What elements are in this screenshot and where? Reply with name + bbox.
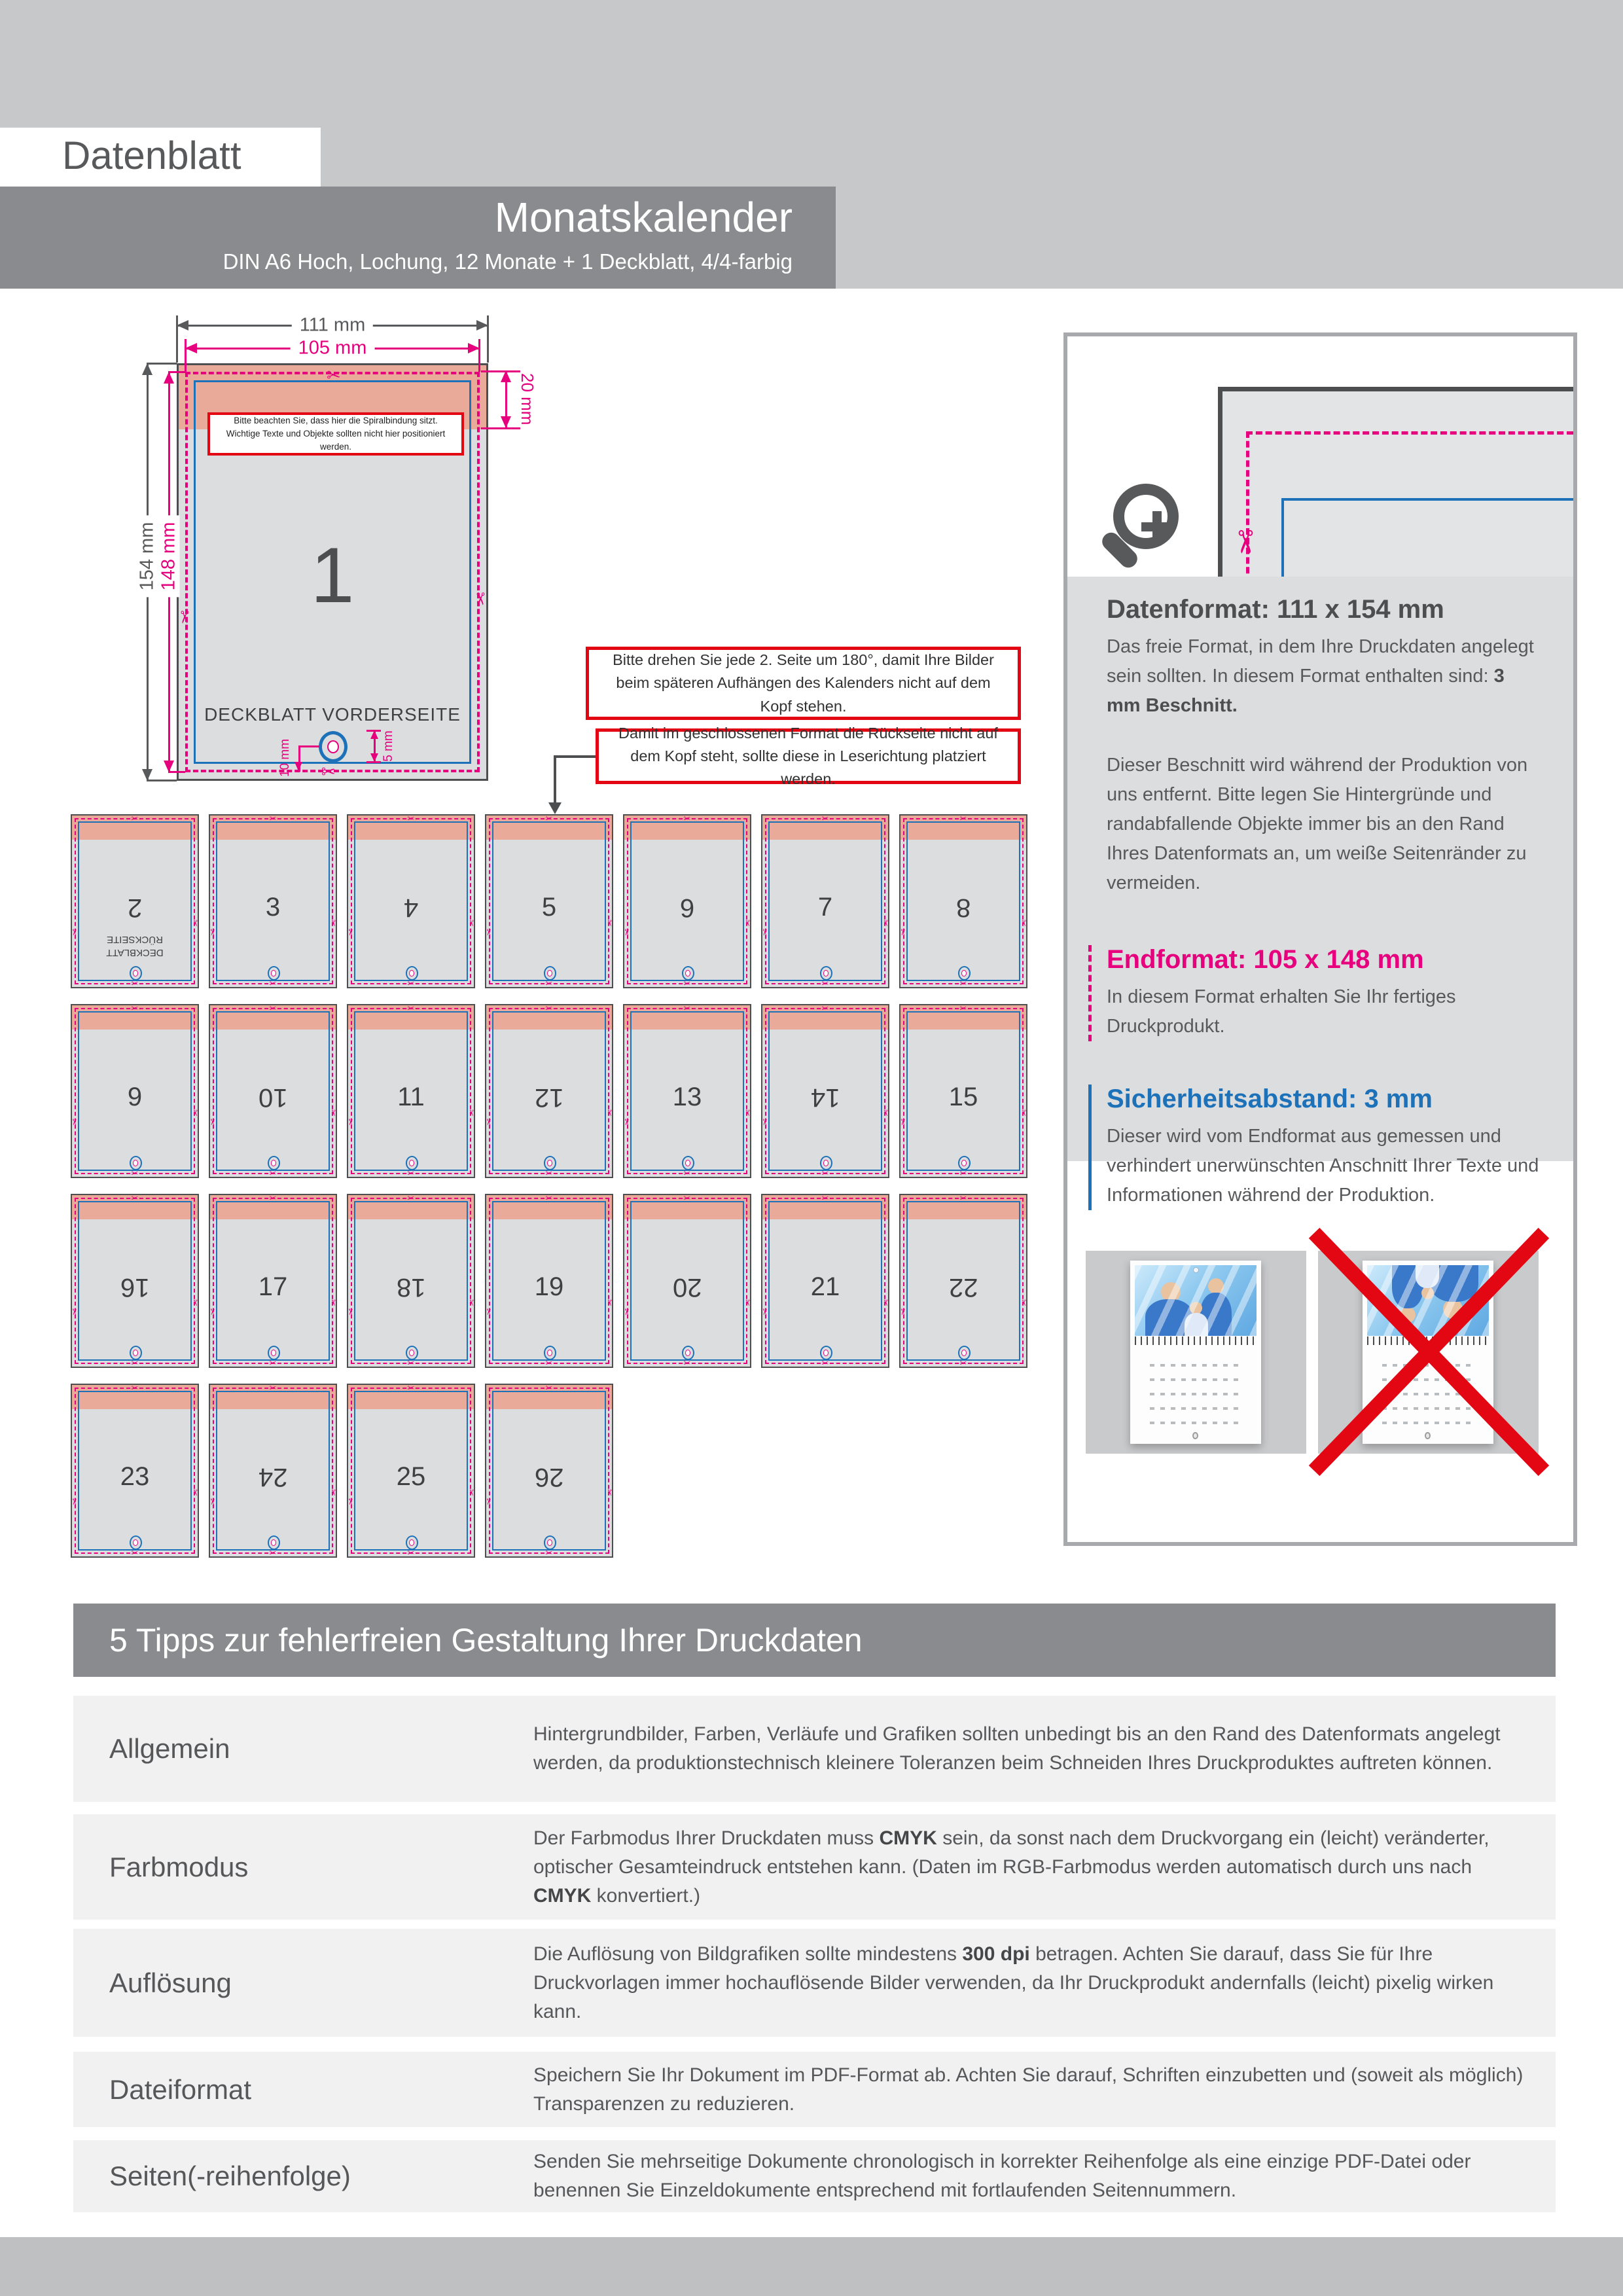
tip-label: Dateiformat (109, 2074, 251, 2106)
punch-hole-inner (547, 970, 552, 977)
scissors-icon: ✂ (684, 1194, 691, 1202)
calendar-page-thumb-7: ✂✂✂✂7 (761, 814, 889, 988)
safety-block: Sicherheitsabstand: 3 mm Dieser wird vom… (1088, 1085, 1541, 1210)
punch-hole-inner (409, 1160, 414, 1166)
punch-hole-inner (961, 1160, 967, 1166)
punch-hole (682, 1156, 694, 1170)
product-header-bar: Monatskalender DIN A6 Hoch, Lochung, 12 … (0, 187, 836, 289)
punch-hole-inner (547, 1539, 552, 1546)
dim-label-hole-height: 5 mm (382, 730, 396, 762)
tip-text: Der Farbmodus Ihrer Druckdaten muss CMYK… (533, 1824, 1526, 1910)
scissors-icon: ✂ (484, 1498, 493, 1505)
scissors-icon: ✂ (484, 1308, 493, 1316)
endformat-block: Endformat: 105 x 148 mm In diesem Format… (1088, 945, 1541, 1041)
calendar-page-thumb-11: ✂✂✂✂11 (347, 1004, 475, 1178)
punch-hole-inner (271, 1350, 276, 1356)
arrowhead (501, 416, 511, 428)
punch-hole-inner (133, 1350, 138, 1356)
safety-title: Sicherheitsabstand: 3 mm (1107, 1085, 1541, 1114)
dim-ext (185, 339, 187, 372)
calendar-photo (1135, 1265, 1257, 1336)
page-number: 16 (72, 1272, 198, 1302)
scissors-icon: ✂ (208, 929, 217, 936)
dim-label-binding-zone: 20 mm (517, 373, 537, 425)
person-body (1416, 1265, 1439, 1288)
calendar-page-thumb-15: ✂✂✂✂15 (899, 1004, 1027, 1178)
scissors-icon: ✂ (346, 1498, 355, 1505)
scissors-icon: ✂ (176, 610, 193, 624)
binding-warning-line2: Wichtige Texte und Objekte sollten nicht… (210, 427, 461, 454)
scissors-icon: ✂ (622, 929, 631, 936)
arrowhead (185, 343, 197, 353)
tip-row-1: AllgemeinHintergrundbilder, Farben, Verl… (73, 1696, 1556, 1802)
page-number: 14 (762, 1083, 888, 1112)
calendar-page-thumb-24: ✂✂✂✂24 (209, 1384, 337, 1558)
calendar-page-thumb-14: ✂✂✂✂14 (761, 1004, 889, 1178)
product-title: Monatskalender (495, 193, 793, 242)
calendar-page-thumb-26: ✂✂✂✂26 (485, 1384, 613, 1558)
calendar-correct (1130, 1261, 1261, 1444)
tip-label: Farbmodus (109, 1852, 248, 1883)
calendar-page-thumb-10: ✂✂✂✂10 (209, 1004, 337, 1178)
calendar-page-thumb-18: ✂✂✂✂18 (347, 1194, 475, 1368)
tip-text: Hintergrundbilder, Farben, Verläufe und … (533, 1720, 1526, 1778)
photo-content (1135, 1265, 1257, 1336)
binding-warning-box: Bitte beachten Sie, dass hier die Spiral… (207, 412, 464, 456)
arrowhead (164, 372, 174, 384)
page-number: 5 (486, 893, 612, 922)
tip-row-3: AuflösungDie Auflösung von Bildgrafiken … (73, 1929, 1556, 2037)
punch-hole (820, 966, 832, 980)
scissors-icon: ✂ (346, 1308, 355, 1316)
endformat-title: Endformat: 105 x 148 mm (1107, 945, 1541, 975)
scissors-icon: ✂ (70, 1498, 79, 1505)
page-number: 22 (901, 1272, 1026, 1302)
scissors-icon: ✂ (484, 929, 493, 936)
calendar-page-thumb-2: ✂✂✂✂2DECKBLATT RÜCKSEITE (71, 814, 199, 988)
scissors-icon: ✂ (346, 1119, 355, 1126)
page-number: 18 (348, 1272, 474, 1302)
calendar-page-thumb-23: ✂✂✂✂23 (71, 1384, 199, 1558)
datasheet-page: Datenblatt Monatskalender DIN A6 Hoch, L… (0, 0, 1623, 2296)
dim-ext (168, 771, 185, 773)
scissors-icon: ✂ (270, 1194, 277, 1202)
scissors-icon: ✂ (132, 1004, 139, 1013)
scissors-icon: ✂ (546, 1194, 553, 1202)
punch-hole (268, 1535, 280, 1550)
punch-hole (958, 1156, 971, 1170)
scissors-icon: ✂ (899, 1119, 907, 1126)
datenformat-text-2: Dieser Beschnitt wird während der Produk… (1107, 751, 1541, 898)
corner-safety-border (1281, 498, 1573, 583)
scissors-icon: ✂ (132, 1384, 139, 1392)
format-info-panel: ✂ Datenformat: 111 x 154 mm Das freie Fo… (1063, 332, 1577, 1546)
scissors-icon: ✂ (484, 1119, 493, 1126)
dim-ext (298, 745, 319, 747)
calendar-grid-row (1382, 1422, 1474, 1424)
page-number: 26 (486, 1462, 612, 1492)
tip-text: Die Auflösung von Bildgrafiken sollte mi… (533, 1940, 1526, 2026)
calendar-page-thumb-4: ✂✂✂✂4 (347, 814, 475, 988)
page-label: DECKBLATT VORDERSEITE (179, 704, 486, 725)
scissors-icon: ✂ (408, 814, 415, 823)
page-number: 9 (72, 1083, 198, 1112)
tip-label: Auflösung (109, 1967, 232, 1999)
tip-label: Seiten(-reihenfolge) (109, 2161, 351, 2192)
dim-ext (147, 780, 177, 781)
calendar-grid-row (1150, 1364, 1241, 1367)
punch-hole (130, 1535, 142, 1550)
calendar-grid-row (1150, 1393, 1241, 1395)
calendar-page-thumb-9: ✂✂✂✂9 (71, 1004, 199, 1178)
person-head (1208, 1278, 1224, 1294)
dim-ext (147, 363, 177, 365)
dim-ext (478, 339, 480, 372)
punch-hole (682, 966, 694, 980)
punch-hole-inner (823, 1160, 829, 1166)
person-body (1200, 1293, 1232, 1336)
calendar-page-thumb-12: ✂✂✂✂12 (485, 1004, 613, 1178)
scissors-icon: ✂ (960, 814, 967, 823)
note-rotate-pages: Bitte drehen Sie jede 2. Seite um 180°, … (586, 647, 1021, 720)
dim-label-height-trim: 148 mm (158, 516, 180, 598)
page-number: 1 (179, 530, 486, 620)
punch-hole-inner (327, 740, 339, 753)
scissors-icon: ✂ (270, 814, 277, 823)
punch-hole-inner (271, 1539, 276, 1546)
scissors-icon: ✂ (208, 1498, 217, 1505)
page-number: 13 (624, 1083, 750, 1112)
scissors-icon: ✂ (327, 367, 341, 384)
person-head (1161, 1282, 1181, 1302)
page-number: 12 (486, 1083, 612, 1112)
calendar-page-thumb-22: ✂✂✂✂22 (899, 1194, 1027, 1368)
tip-row-4: DateiformatSpeichern Sie Ihr Dokument im… (73, 2052, 1556, 2127)
punch-hole (820, 1156, 832, 1170)
arrowhead (501, 370, 511, 382)
page-number: 23 (72, 1462, 198, 1492)
tips-title: 5 Tipps zur fehlerfreien Gestaltung Ihre… (73, 1604, 1556, 1677)
scissors-icon: ✂ (622, 1308, 631, 1316)
endformat-text: In diesem Format erhalten Sie Ihr fertig… (1107, 982, 1541, 1041)
doc-type-label: Datenblatt (62, 133, 241, 178)
scissors-icon: ✂ (408, 1004, 415, 1013)
arrowhead (370, 753, 378, 762)
punch-hole-inner (271, 970, 276, 977)
scissors-icon: ✂ (321, 763, 336, 780)
scissors-icon: ✂ (622, 1119, 631, 1126)
punch-hole-inner (823, 970, 829, 977)
punch-hole (130, 1346, 142, 1360)
punch-hole (1425, 1432, 1431, 1439)
scissors-icon: ✂ (760, 1308, 769, 1316)
scissors-icon: ✂ (70, 1119, 79, 1126)
scissors-icon: ✂ (899, 929, 907, 936)
calendar-page-thumb-16: ✂✂✂✂16 (71, 1194, 199, 1368)
page-number: 11 (348, 1083, 474, 1112)
bottom-gray-band (0, 2237, 1623, 2296)
scissors-icon: ✂ (822, 1194, 829, 1202)
scissors-icon: ✂ (270, 1384, 277, 1392)
calendar-grid-row (1382, 1407, 1474, 1410)
person-head (1421, 1287, 1434, 1299)
page-number: 2 (72, 893, 198, 922)
tip-row-2: FarbmodusDer Farbmodus Ihrer Druckdaten … (73, 1814, 1556, 1920)
scissors-icon: ✂ (408, 1194, 415, 1202)
calendar-page-thumb-3: ✂✂✂✂3 (209, 814, 337, 988)
hanger-hole (1193, 1267, 1199, 1273)
arrowhead (294, 762, 302, 771)
punch-hole (958, 1346, 971, 1360)
scissors-icon: ✂ (208, 1308, 217, 1316)
scissors-icon: ✂ (684, 814, 691, 823)
page-number: 24 (210, 1462, 336, 1492)
scissors-icon: ✂ (760, 929, 769, 936)
safety-text: Dieser wird vom Endformat aus gemessen u… (1107, 1122, 1541, 1210)
page-number: 17 (210, 1272, 336, 1302)
calendar-page-thumb-19: ✂✂✂✂19 (485, 1194, 613, 1368)
punch-hole (544, 966, 556, 980)
page-label: DECKBLATT RÜCKSEITE (72, 933, 198, 959)
page-number: 21 (762, 1272, 888, 1302)
example-correct-photo (1086, 1251, 1306, 1454)
punch-hole (406, 966, 418, 980)
punch-hole-inner (547, 1160, 552, 1166)
punch-hole (544, 1346, 556, 1360)
page-number: 8 (901, 893, 1026, 922)
punch-hole (406, 1156, 418, 1170)
scissors-icon: ✂ (132, 814, 139, 823)
calendar-page-thumb-13: ✂✂✂✂13 (623, 1004, 751, 1178)
punch-hole (406, 1535, 418, 1550)
tip-text: Senden Sie mehrseitige Dokumente chronol… (533, 2147, 1526, 2205)
punch-hole (820, 1346, 832, 1360)
note-connector (554, 755, 556, 804)
datenformat-title: Datenformat: 111 x 154 mm (1107, 595, 1541, 624)
punch-hole-inner (961, 1350, 967, 1356)
calendar-page-thumb-6: ✂✂✂✂6 (623, 814, 751, 988)
calendar-grid-row (1382, 1364, 1474, 1367)
binding-warning-line1: Bitte beachten Sie, dass hier die Spiral… (210, 414, 461, 427)
page-number: 19 (486, 1272, 612, 1302)
punch-hole-inner (685, 970, 690, 977)
tip-text: Speichern Sie Ihr Dokument im PDF-Format… (533, 2061, 1526, 2119)
page-number: 3 (210, 893, 336, 922)
punch-hole-inner (685, 1350, 690, 1356)
punch-hole-inner (133, 970, 138, 977)
page-number: 6 (624, 893, 750, 922)
dim-ext (176, 315, 178, 363)
dim-label-width-trim: 105 mm (291, 338, 375, 359)
scissors-icon: ✂ (270, 1004, 277, 1013)
punch-hole-inner (133, 1160, 138, 1166)
calendar-grid-row (1150, 1422, 1241, 1424)
note-connector (554, 755, 596, 758)
calendar-page-thumb-20: ✂✂✂✂20 (623, 1194, 751, 1368)
scissors-icon: ✂ (132, 1194, 139, 1202)
scissors-icon: ✂ (1228, 529, 1260, 555)
punch-hole (319, 731, 348, 762)
punch-hole-inner (823, 1350, 829, 1356)
dim-label-width-total: 111 mm (292, 315, 373, 336)
magnifier-lens (1113, 484, 1179, 549)
person-body (1185, 1313, 1208, 1336)
person-head (1190, 1302, 1202, 1314)
dim-ext (487, 315, 489, 363)
punch-hole (268, 966, 280, 980)
dim-label-hole-offset: 10 mm (278, 739, 293, 777)
punch-hole (682, 1346, 694, 1360)
punch-hole-inner (409, 970, 414, 977)
dim-ext (168, 371, 185, 373)
doc-type-box: Datenblatt (0, 128, 321, 187)
calendar-grid-row (1150, 1378, 1241, 1381)
punch-hole (130, 1156, 142, 1170)
punch-hole (268, 1346, 280, 1360)
spiral-binding (1135, 1336, 1257, 1345)
scissors-icon: ✂ (960, 1004, 967, 1013)
calendar-page-thumb-25: ✂✂✂✂25 (347, 1384, 475, 1558)
punch-hole-inner (271, 1160, 276, 1166)
punch-hole (544, 1156, 556, 1170)
punch-hole (130, 966, 142, 980)
punch-hole (1192, 1432, 1198, 1439)
calendar-page-thumb-8: ✂✂✂✂8 (899, 814, 1027, 988)
arrowhead (177, 320, 188, 331)
product-subtitle: DIN A6 Hoch, Lochung, 12 Monate + 1 Deck… (223, 249, 793, 274)
format-text-section: Datenformat: 111 x 154 mm Das freie Form… (1067, 577, 1573, 1161)
scissors-icon: ✂ (546, 1004, 553, 1013)
page-number: 10 (210, 1083, 336, 1112)
punch-hole (544, 1535, 556, 1550)
scissors-icon: ✂ (346, 929, 355, 936)
scissors-icon: ✂ (822, 814, 829, 823)
datenformat-text-1: Das freie Format, in dem Ihre Druckdaten… (1107, 632, 1541, 721)
scissors-icon: ✂ (408, 1384, 415, 1392)
punch-hole (268, 1156, 280, 1170)
calendar-page-thumb-17: ✂✂✂✂17 (209, 1194, 337, 1368)
punch-hole-inner (547, 1350, 552, 1356)
tip-row-5: Seiten(-reihenfolge)Senden Sie mehrseiti… (73, 2140, 1556, 2212)
plus-icon (1152, 511, 1162, 543)
note-connector-arrow (548, 802, 562, 814)
page-number: 4 (348, 893, 474, 922)
arrowhead (142, 363, 152, 375)
scissors-icon: ✂ (70, 1308, 79, 1316)
punch-hole-inner (961, 970, 967, 977)
scissors-icon: ✂ (546, 1384, 553, 1392)
scissors-icon: ✂ (760, 1119, 769, 1126)
scissors-icon: ✂ (899, 1308, 907, 1316)
person-body (1145, 1299, 1194, 1336)
page-number: 15 (901, 1083, 1026, 1112)
scissors-icon: ✂ (472, 592, 489, 606)
punch-hole-inner (133, 1539, 138, 1546)
calendar-page-thumb-5: ✂✂✂✂5 (485, 814, 613, 988)
cover-page-diagram: Bitte beachten Sie, dass hier die Spiral… (177, 363, 488, 781)
scissors-icon: ✂ (960, 1194, 967, 1202)
arrowhead (370, 730, 378, 739)
punch-hole-inner (685, 1160, 690, 1166)
note-backside-orientation: Damit im geschlossenen Format die Rückse… (596, 728, 1021, 784)
person-body (1392, 1265, 1423, 1308)
magnifier-plus-icon (1107, 484, 1185, 575)
calendar-page-thumb-21: ✂✂✂✂21 (761, 1194, 889, 1368)
punch-hole-inner (409, 1350, 414, 1356)
calendar-grid-row (1150, 1407, 1241, 1410)
tips-header-bar: 5 Tipps zur fehlerfreien Gestaltung Ihre… (73, 1604, 1556, 1677)
page-number: 20 (624, 1272, 750, 1302)
punch-hole (406, 1346, 418, 1360)
page-number: 7 (762, 893, 888, 922)
scissors-icon: ✂ (546, 814, 553, 823)
punch-hole (958, 966, 971, 980)
dim-label-height-total: 154 mm (137, 516, 158, 598)
scissors-icon: ✂ (684, 1004, 691, 1013)
page-number: 25 (348, 1462, 474, 1492)
scissors-icon: ✂ (208, 1119, 217, 1126)
tip-label: Allgemein (109, 1733, 230, 1765)
scissors-icon: ✂ (822, 1004, 829, 1013)
punch-hole-inner (409, 1539, 414, 1546)
